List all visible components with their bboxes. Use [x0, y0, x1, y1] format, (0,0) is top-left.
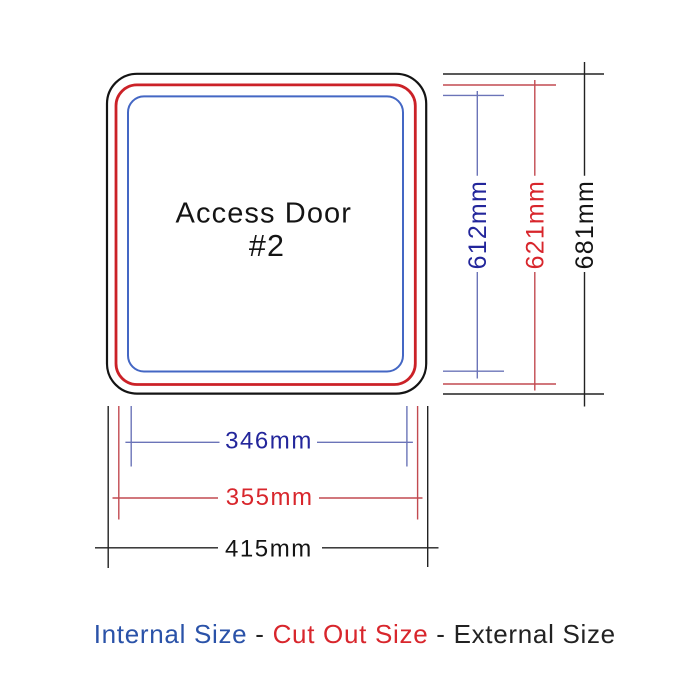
svg-text:346mm: 346mm	[225, 427, 313, 454]
svg-text:612mm: 612mm	[464, 180, 492, 269]
svg-text:415mm: 415mm	[225, 536, 313, 563]
svg-text:#2: #2	[249, 229, 285, 263]
svg-text:Access Door: Access Door	[176, 197, 353, 229]
svg-text:621mm: 621mm	[521, 180, 549, 269]
svg-text:681mm: 681mm	[571, 180, 599, 269]
svg-text:355mm: 355mm	[226, 484, 314, 511]
svg-text:Internal Size - Cut Out Size -: Internal Size - Cut Out Size - External …	[94, 619, 616, 649]
